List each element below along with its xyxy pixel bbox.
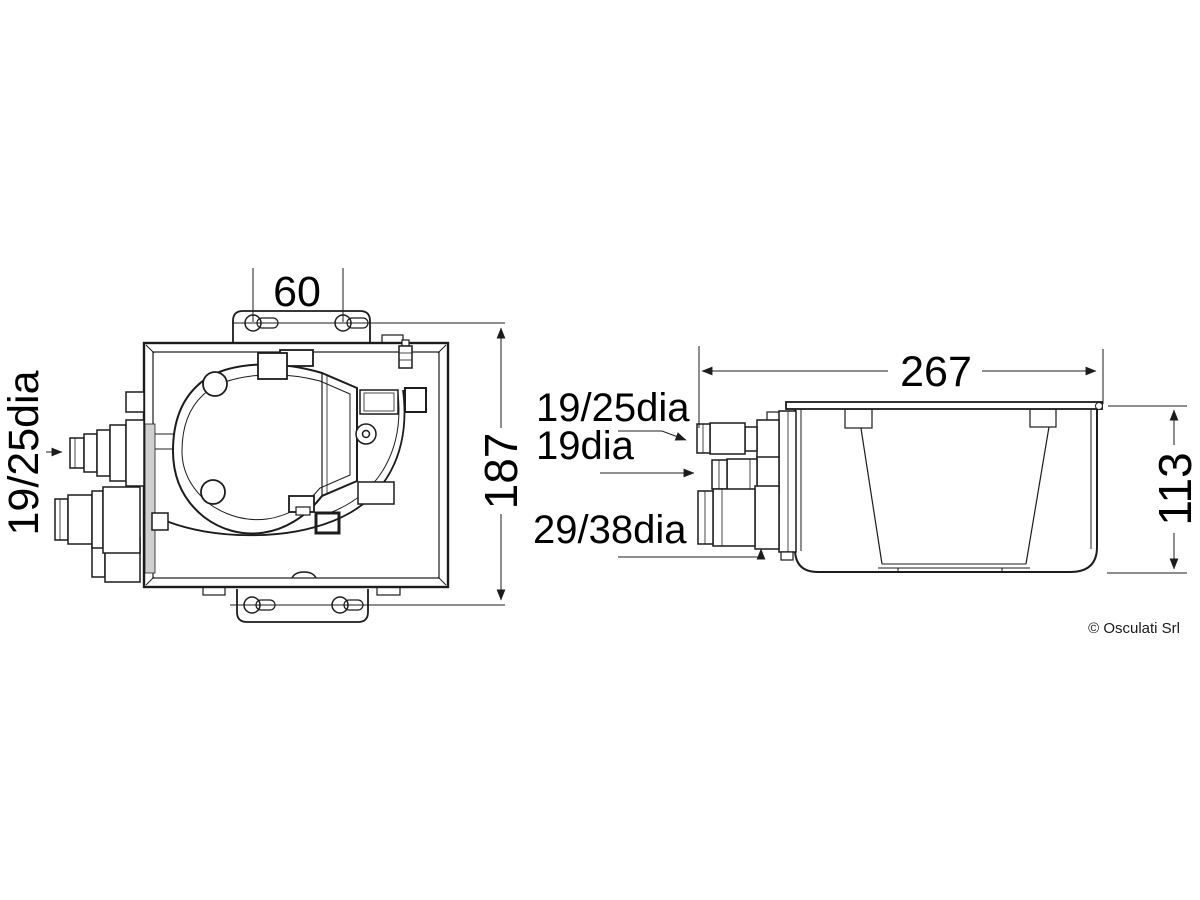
- port-plate-wall: [145, 424, 155, 573]
- fitting-step: [92, 491, 103, 548]
- rim-corner-mark: [1096, 403, 1103, 410]
- technical-drawing-svg: 60 187 19/25dia: [0, 0, 1200, 900]
- motor-foot: [360, 390, 398, 414]
- fitting-step: [70, 438, 84, 468]
- fitting-step: [68, 495, 92, 544]
- fitting-collar: [103, 487, 140, 553]
- tank-body: [786, 402, 1103, 572]
- mount-pad: [405, 388, 426, 412]
- motor-foot: [358, 482, 394, 504]
- hose-elbow: [152, 513, 168, 530]
- fitting-step: [97, 430, 110, 476]
- fitting-body: [713, 489, 755, 546]
- pump-clip: [296, 507, 310, 515]
- cable-gland-body: [399, 346, 412, 368]
- port-29-38-label: 29/38dia: [533, 508, 687, 552]
- fitting-step: [745, 427, 757, 451]
- drawing-page: 60 187 19/25dia: [0, 0, 1200, 900]
- fitting-tip: [712, 460, 727, 489]
- hose-fittings-left: [55, 420, 144, 582]
- fitting-19-25dia: [697, 420, 779, 457]
- dim-187-label: 187: [475, 433, 527, 510]
- fitting-step: [110, 425, 126, 481]
- fitting-29-38dia: [698, 486, 779, 549]
- fitting-tip: [697, 424, 710, 453]
- pump-ear-hole: [201, 480, 225, 504]
- copyright-text: © Osculati Srl: [1088, 620, 1180, 637]
- mounting-flange-bottom: [203, 586, 400, 622]
- fitting-collar: [126, 420, 144, 486]
- pump-ear-hole: [203, 372, 227, 396]
- wall-tab: [126, 392, 144, 412]
- port-19-label: 19dia: [536, 424, 635, 468]
- plate-foot: [781, 552, 793, 560]
- fitting-step: [55, 499, 68, 540]
- port-19-25-label: 19/25dia: [0, 370, 48, 535]
- dim-60-label: 60: [273, 268, 321, 316]
- rim-notch: [1030, 409, 1056, 427]
- dimension-113: 113: [1107, 406, 1200, 573]
- cable-gland: [402, 340, 409, 346]
- fittings-stack: [697, 420, 779, 549]
- side-view: 267 113 19/25dia 19dia 29/38dia: [533, 346, 1200, 573]
- dim-113-label: 113: [1149, 452, 1200, 525]
- fitting-body: [727, 459, 757, 490]
- dim-267-label: 267: [900, 348, 972, 396]
- rim-notch: [845, 409, 872, 428]
- fitting-body: [710, 423, 745, 454]
- tank-rim: [786, 402, 1102, 409]
- fitting-collar: [755, 486, 779, 549]
- fitting-tip: [698, 491, 713, 544]
- inlet-fitting-29-38: [55, 487, 140, 582]
- screw-center: [363, 431, 370, 438]
- outlet-fitting-19-25: [70, 420, 144, 486]
- pump-clip: [258, 353, 287, 379]
- tank-outline: [795, 409, 1097, 572]
- fitting-step: [84, 434, 97, 472]
- fitting-collar: [757, 420, 779, 457]
- plate-body: [779, 411, 796, 552]
- top-view: 60 187 19/25dia: [0, 268, 527, 622]
- port-label-19-25-top-view: 19/25dia: [0, 370, 62, 535]
